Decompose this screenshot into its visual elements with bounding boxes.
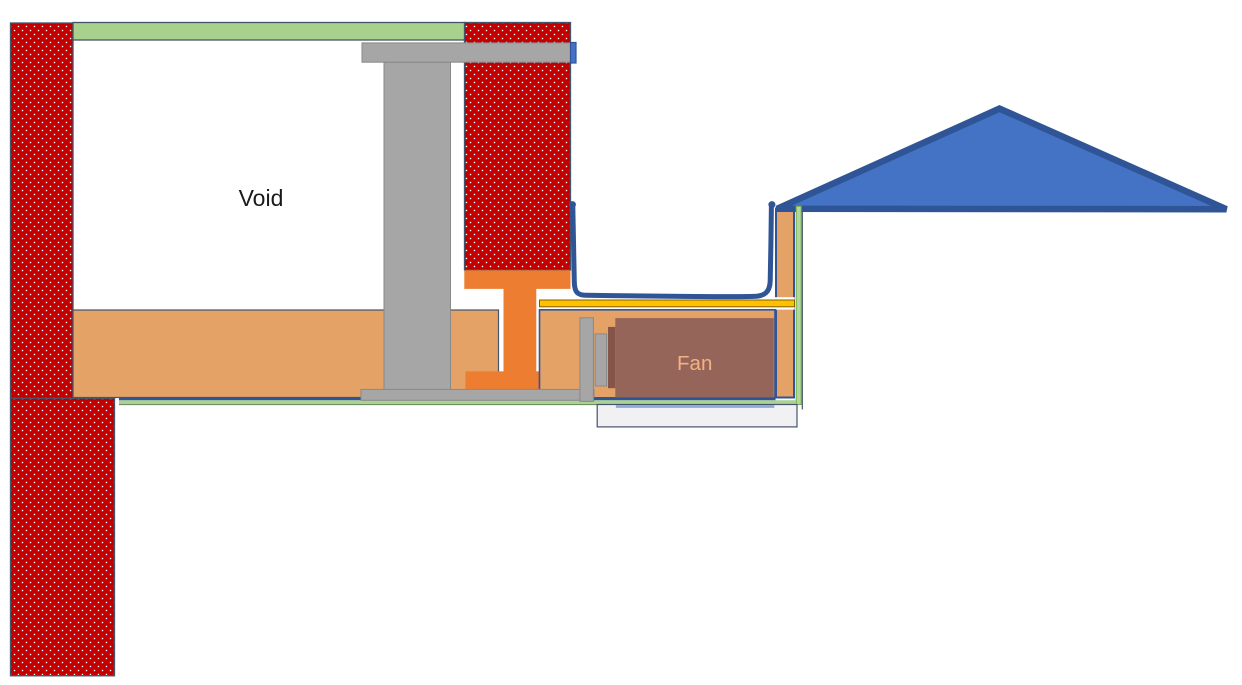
- svg-text:Fan: Fan: [677, 352, 712, 375]
- svg-text:Void: Void: [239, 185, 284, 211]
